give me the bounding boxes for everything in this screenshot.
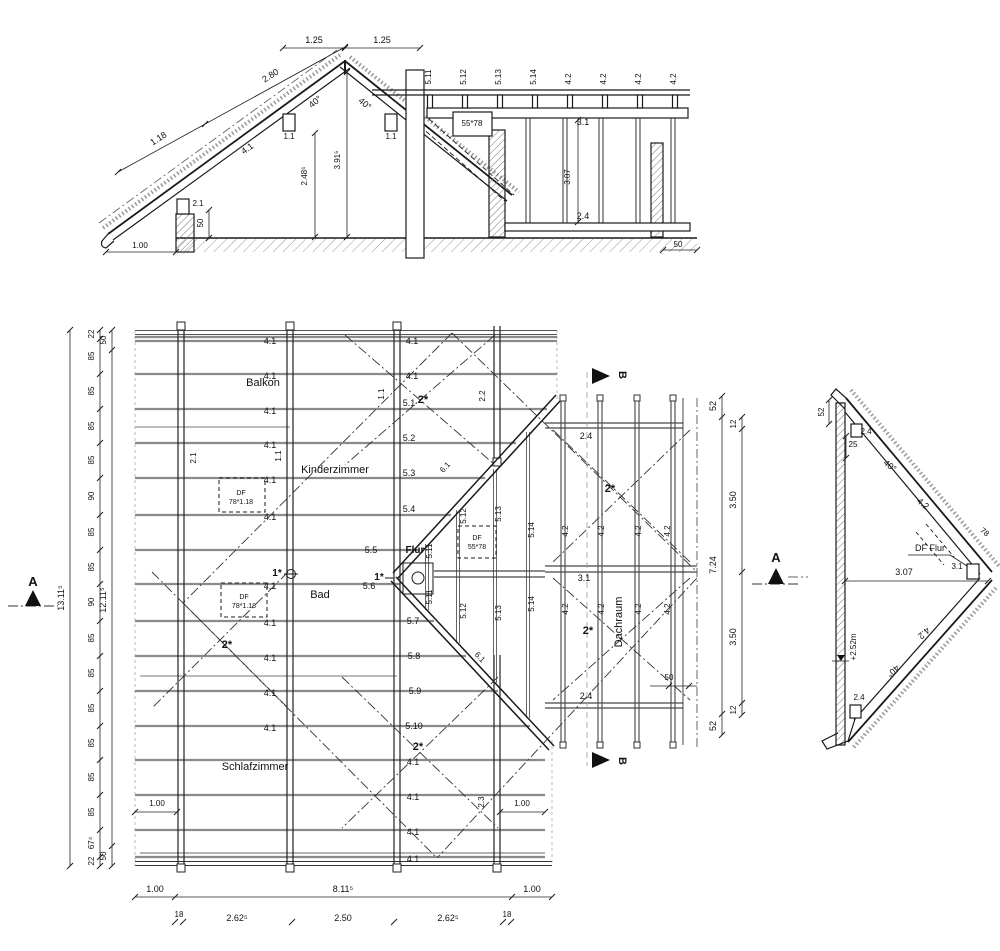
label-100-133: 1.00	[149, 799, 165, 808]
label-307-149: 3.07	[895, 567, 913, 577]
wall-hatch	[836, 403, 845, 745]
label-42-152: 4.2	[916, 625, 932, 641]
label-41-46: 4.1	[407, 757, 420, 767]
label-24-25: 2.4	[577, 211, 590, 221]
label-41-48: 4.1	[407, 827, 420, 837]
section-marker-b-bottom	[592, 752, 610, 768]
label-18-132: 18	[503, 910, 512, 919]
label-21-67: 2.1	[189, 452, 198, 464]
label-df-86: DF	[472, 535, 481, 542]
lower-roof-covering	[852, 588, 996, 749]
label-100-134: 1.00	[514, 799, 530, 808]
label-31-89: 3.1	[578, 573, 591, 583]
ridge-beam-3-1	[967, 564, 979, 579]
label-85-118: 85	[87, 807, 96, 816]
label-50-124: 50	[99, 851, 108, 860]
label-125-1: 1.25	[373, 35, 391, 45]
left-wall-hatch	[176, 214, 194, 252]
label-flur-30: Flur	[406, 545, 425, 556]
label-248-10: 2.48⁵	[300, 167, 309, 186]
label-511-74: 5.11	[425, 543, 434, 559]
label-40-145: 40°	[881, 457, 898, 474]
label-42-94: 4.2	[663, 525, 672, 537]
label-21-11: 2.1	[192, 199, 204, 208]
section-marker-b-top	[592, 368, 610, 384]
label-50-122: 50	[99, 335, 108, 344]
label-11-8: 1.1	[385, 132, 397, 141]
label-90-112: 90	[87, 597, 96, 606]
label-2-66: 2*	[583, 625, 594, 637]
label-724-136: 7.24	[708, 556, 718, 574]
label-5578-22: 55*78	[462, 119, 483, 128]
label-42-98: 4.2	[663, 603, 672, 615]
ground-hatch	[176, 239, 697, 252]
slope-dim-line	[118, 47, 345, 172]
label-514-17: 5.14	[529, 69, 538, 85]
label-262-131: 2.62⁵	[437, 913, 459, 923]
label-52-142: 52	[817, 407, 826, 416]
label-42-92: 4.2	[597, 525, 606, 537]
label-1-60: 1*	[272, 568, 282, 579]
label-42-20: 4.2	[634, 73, 643, 85]
joist-stubs	[428, 95, 678, 108]
label-22-70: 2.2	[478, 390, 487, 402]
label-52-51: 5.2	[403, 433, 416, 443]
label-41-45: 4.1	[406, 371, 419, 381]
label-85-113: 85	[87, 633, 96, 642]
label-50-12: 50	[196, 218, 205, 227]
eave-tip	[102, 234, 115, 248]
label-41-49: 4.1	[407, 854, 420, 864]
label-100-13: 1.00	[132, 241, 148, 250]
label-12-138: 12	[729, 419, 738, 428]
label-52-135: 52	[708, 401, 718, 411]
roof-framing-technical-drawing: 1.251.252.801.184.140°40°1.11.13.91⁵2.48…	[0, 0, 1000, 951]
label-513-79: 5.13	[494, 605, 503, 621]
label-2-63: 2*	[222, 639, 233, 651]
label-12-141: 12	[729, 705, 738, 714]
label-118-3: 1.18	[148, 130, 168, 148]
label-22-120: 22	[87, 856, 96, 865]
label-41-38: 4.1	[264, 512, 277, 522]
label-307-24: 3.07	[563, 169, 572, 185]
label-dfflur-148: DF Flur	[915, 543, 945, 553]
tick	[202, 121, 208, 127]
label-78118-83: 78*1.18	[229, 499, 253, 506]
label-24-90: 2.4	[580, 691, 593, 701]
label-280-2: 2.80	[260, 67, 280, 85]
lower-slope-outer	[848, 580, 992, 742]
purlin-2-4-bottom	[850, 705, 861, 718]
label-50-99: 50	[665, 673, 674, 682]
label-125-0: 1.25	[305, 35, 323, 45]
label-85-117: 85	[87, 772, 96, 781]
label-50-26: 50	[674, 240, 683, 249]
label-41-39: 4.1	[264, 581, 277, 591]
label-41-36: 4.1	[264, 440, 277, 450]
label-kinderzimmer-28: Kinderzimmer	[301, 464, 369, 476]
label-41-4: 4.1	[239, 141, 255, 156]
label-1211-123: 12.11⁵	[98, 587, 108, 613]
label-512-77: 5.12	[459, 603, 468, 619]
label-31-150: 3.1	[951, 562, 963, 571]
label-55-54: 5.5	[365, 545, 378, 555]
label-513-16: 5.13	[494, 69, 503, 85]
label-85-116: 85	[87, 738, 96, 747]
label-41-35: 4.1	[264, 406, 277, 416]
left-roof-covering-hatch	[103, 55, 340, 228]
label-bad-29: Bad	[310, 589, 330, 601]
label-41-42: 4.1	[264, 688, 277, 698]
roof-window-flur	[458, 526, 496, 558]
left-rafter-inner	[113, 68, 350, 240]
label-85-114: 85	[87, 668, 96, 677]
label-24-143: 2.4	[860, 427, 872, 436]
label-58-57: 5.8	[408, 651, 421, 661]
label-100-125: 1.00	[146, 884, 164, 894]
label-512-76: 5.12	[459, 508, 468, 524]
label-5578-87: 55*78	[468, 544, 486, 551]
section-b	[788, 389, 999, 749]
label-54-53: 5.4	[403, 504, 416, 514]
label-42-18: 4.2	[564, 73, 573, 85]
label-41-40: 4.1	[264, 618, 277, 628]
label-85-106: 85	[87, 386, 96, 395]
label-78118-85: 78*1.18	[232, 603, 256, 610]
label-350-139: 3.50	[728, 491, 738, 509]
label-262-129: 2.62⁵	[226, 913, 248, 923]
label-18-128: 18	[175, 910, 184, 919]
label-dachraum-32: Dachraum	[613, 597, 625, 648]
label-85-115: 85	[87, 703, 96, 712]
tick	[115, 169, 121, 175]
label-42-91: 4.2	[561, 525, 570, 537]
label-25-144: 25	[849, 440, 858, 449]
label-85-108: 85	[87, 455, 96, 464]
label-11-7: 1.1	[283, 132, 295, 141]
drawing-stage: 1.251.252.801.184.140°40°1.11.13.91⁵2.48…	[0, 0, 1000, 951]
label-b-101: B	[616, 757, 628, 765]
center-post	[406, 70, 424, 258]
label-85-105: 85	[87, 351, 96, 360]
upper-roof-covering	[851, 390, 999, 566]
label-24-154: 2.4	[853, 693, 865, 702]
label-41-43: 4.1	[264, 723, 277, 733]
label-42-93: 4.2	[634, 525, 643, 537]
label-24-88: 2.4	[580, 431, 593, 441]
tick	[342, 44, 348, 50]
label-514-80: 5.14	[527, 522, 536, 538]
label-53-52: 5.3	[403, 468, 416, 478]
label-a-102: A	[28, 574, 38, 589]
label-42-19: 4.2	[599, 73, 608, 85]
label-61-72: 6.1	[438, 460, 452, 475]
label-811-126: 8.11⁵	[333, 884, 354, 894]
section-marker-a-right	[768, 568, 784, 584]
label-41-44: 4.1	[406, 336, 419, 346]
wall-hatch-mid	[489, 130, 505, 237]
label-23-71: 2.3	[477, 796, 486, 808]
ridge-beams	[177, 322, 501, 872]
label-40-153: 40°	[884, 663, 901, 680]
purlin-1-1-left	[283, 114, 295, 131]
upper-slope-inner	[845, 412, 980, 574]
label-2-64: 2*	[413, 741, 424, 753]
label-67-119: 67⁴	[87, 836, 96, 849]
label-41-37: 4.1	[264, 475, 277, 485]
purlin-1-1-right	[385, 114, 397, 131]
left-rafter-outer	[108, 61, 345, 234]
label-31-23: 3.1	[577, 117, 590, 127]
label-22-104: 22	[87, 329, 96, 338]
label-42-96: 4.2	[597, 603, 606, 615]
valley-joists	[426, 432, 530, 718]
label-a-103: A	[771, 550, 781, 565]
label-2-62: 2*	[418, 394, 429, 406]
purlin-2-1	[177, 199, 189, 214]
label-1311-121: 13.11⁵	[56, 585, 66, 611]
label-df-82: DF	[236, 490, 245, 497]
label-11-69: 1.1	[377, 388, 386, 400]
label-42-97: 4.2	[634, 603, 643, 615]
label-57-56: 5.7	[407, 616, 420, 626]
label-41-41: 4.1	[264, 653, 277, 663]
label-510-59: 5.10	[405, 721, 423, 731]
label-schlafzimmer-31: Schlafzimmer	[222, 761, 289, 773]
beam-2-4	[505, 223, 690, 231]
label-42-95: 4.2	[561, 603, 570, 615]
label-11-68: 1.1	[274, 450, 283, 462]
label-42-21: 4.2	[669, 73, 678, 85]
label-85-111: 85	[87, 562, 96, 571]
label-59-58: 5.9	[409, 686, 422, 696]
label-85-110: 85	[87, 527, 96, 536]
label-511-75: 5.11	[425, 589, 434, 605]
label-2-65: 2*	[605, 483, 616, 495]
label-61-73: 6.1	[473, 650, 488, 665]
label-511-14: 5.11	[424, 69, 433, 85]
label-252m-151: +2.52m	[849, 633, 858, 660]
label-100-127: 1.00	[523, 884, 541, 894]
dachraum	[545, 395, 697, 748]
label-391-9: 3.91⁵	[333, 151, 342, 170]
label-40-6: 40°	[356, 95, 373, 112]
label-52-137: 52	[708, 721, 718, 731]
label-513-78: 5.13	[494, 506, 503, 522]
label-41-34: 4.1	[264, 371, 277, 381]
label-41-33: 4.1	[264, 336, 277, 346]
label-512-15: 5.12	[459, 69, 468, 85]
label-78-147: 78	[978, 526, 991, 539]
label-40-5: 40°	[307, 93, 324, 110]
label-51-50: 5.1	[403, 398, 416, 408]
section-marker-a-left	[25, 590, 41, 606]
label-514-81: 5.14	[527, 596, 536, 612]
label-1-61: 1*	[374, 572, 384, 583]
label-df-84: DF	[239, 594, 248, 601]
label-250-130: 2.50	[334, 913, 352, 923]
left-roof-dashdot	[99, 50, 337, 223]
chimney-circle	[412, 572, 424, 584]
label-b-100: B	[616, 371, 628, 379]
label-85-107: 85	[87, 421, 96, 430]
label-350-140: 3.50	[728, 628, 738, 646]
label-41-47: 4.1	[407, 792, 420, 802]
lower-slope-inner	[854, 578, 980, 720]
label-90-109: 90	[87, 491, 96, 500]
